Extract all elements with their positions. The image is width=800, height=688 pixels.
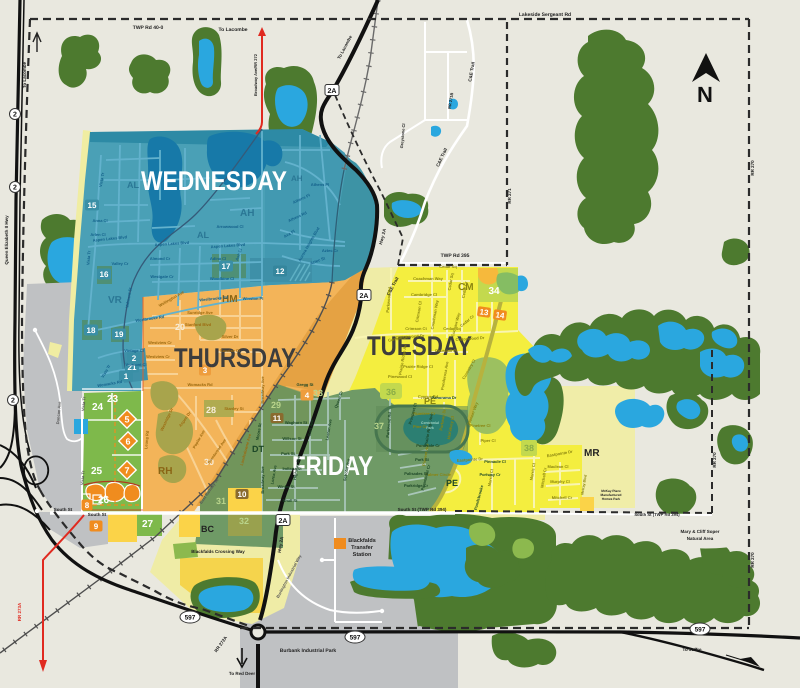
svg-text:Panorama Dr: Panorama Dr xyxy=(432,395,457,400)
svg-text:Almond Cr: Almond Cr xyxy=(150,256,171,261)
svg-text:19: 19 xyxy=(115,330,124,339)
svg-text:To Lacombe: To Lacombe xyxy=(218,27,247,33)
svg-text:6: 6 xyxy=(125,436,130,446)
svg-text:Athens Pl: Athens Pl xyxy=(311,182,329,187)
svg-text:Prairie Ridge Cl: Prairie Ridge Cl xyxy=(403,364,433,369)
svg-text:Valley Cr: Valley Cr xyxy=(112,261,129,266)
svg-text:Pinetree Cl: Pinetree Cl xyxy=(470,423,491,428)
svg-text:10: 10 xyxy=(238,490,247,499)
svg-text:Adina Cl: Adina Cl xyxy=(210,256,226,261)
svg-text:2: 2 xyxy=(13,185,17,192)
svg-text:South St (TWP Rd 394): South St (TWP Rd 394) xyxy=(634,512,680,517)
svg-text:Stanford Blvd: Stanford Blvd xyxy=(185,322,212,327)
svg-text:South St: South St xyxy=(54,507,73,512)
svg-text:Park: Park xyxy=(426,426,434,430)
svg-text:RH: RH xyxy=(158,466,172,477)
svg-text:AH: AH xyxy=(240,208,254,219)
svg-text:Park St: Park St xyxy=(415,457,429,462)
svg-text:BC: BC xyxy=(201,524,214,534)
svg-text:Stanley St: Stanley St xyxy=(224,406,244,411)
svg-text:Indiana St: Indiana St xyxy=(282,466,302,471)
svg-text:Burbank Industrial Park: Burbank Industrial Park xyxy=(280,648,337,654)
svg-text:23: 23 xyxy=(107,394,119,405)
svg-text:Broadway Ave: Broadway Ave xyxy=(260,376,265,404)
svg-text:2A: 2A xyxy=(279,518,288,525)
svg-text:TWP Rd 40-0: TWP Rd 40-0 xyxy=(133,25,164,31)
svg-text:33: 33 xyxy=(313,388,323,398)
svg-text:Cedar Sq: Cedar Sq xyxy=(439,264,457,269)
svg-text:Willson St: Willson St xyxy=(282,436,302,441)
svg-text:Coachman Way: Coachman Way xyxy=(413,276,443,281)
svg-text:16: 16 xyxy=(100,270,109,279)
svg-text:Crimson Ct: Crimson Ct xyxy=(405,326,427,331)
svg-text:DT: DT xyxy=(252,444,264,454)
svg-text:Shull St: Shull St xyxy=(283,498,299,503)
svg-text:RR 270: RR 270 xyxy=(750,160,755,176)
svg-text:RR 271: RR 271 xyxy=(507,188,512,204)
svg-text:Westview Cr: Westview Cr xyxy=(148,340,172,345)
svg-text:Centennial: Centennial xyxy=(421,421,439,425)
svg-text:25: 25 xyxy=(91,466,103,477)
svg-text:Pinnacle Cl: Pinnacle Cl xyxy=(484,459,506,464)
svg-text:12: 12 xyxy=(276,267,285,276)
svg-text:Park St: Park St xyxy=(281,451,295,456)
svg-text:Mitchell Cr: Mitchell Cr xyxy=(552,495,573,500)
svg-text:TWP Rd 395: TWP Rd 395 xyxy=(441,253,470,259)
svg-text:28: 28 xyxy=(206,405,216,415)
svg-text:RR 273A: RR 273A xyxy=(17,602,22,621)
svg-text:Waghorn St: Waghorn St xyxy=(285,420,308,425)
svg-text:Winko St: Winko St xyxy=(277,484,295,489)
svg-text:9: 9 xyxy=(94,522,99,531)
svg-text:597: 597 xyxy=(695,627,706,634)
svg-text:MR: MR xyxy=(584,448,600,459)
svg-text:FRIDAY: FRIDAY xyxy=(292,451,373,481)
svg-text:17: 17 xyxy=(222,262,231,271)
svg-text:Queen Elizabeth II Hwy: Queen Elizabeth II Hwy xyxy=(4,215,9,265)
svg-text:Winston Pl: Winston Pl xyxy=(243,296,264,301)
svg-text:Station: Station xyxy=(353,552,372,558)
svg-text:Sunridge Ave: Sunridge Ave xyxy=(187,310,213,315)
svg-text:Portway Cr: Portway Cr xyxy=(479,472,501,477)
svg-text:Natural Area: Natural Area xyxy=(687,536,714,541)
svg-text:Homes Park: Homes Park xyxy=(602,497,621,501)
svg-text:Aztec Cr: Aztec Cr xyxy=(322,248,339,253)
svg-text:Murphy Cl: Murphy Cl xyxy=(550,479,570,484)
svg-text:29: 29 xyxy=(271,400,281,410)
svg-text:To Joffre: To Joffre xyxy=(683,647,702,652)
svg-text:Arlen Cl: Arlen Cl xyxy=(90,232,105,237)
svg-text:Womacks Rd: Womacks Rd xyxy=(187,382,213,387)
svg-text:Piper Cl: Piper Cl xyxy=(480,438,495,443)
svg-text:597: 597 xyxy=(350,635,361,642)
svg-text:Silver Dr: Silver Dr xyxy=(222,334,239,339)
svg-text:Blackfalds: Blackfalds xyxy=(348,538,376,544)
svg-text:37: 37 xyxy=(374,421,384,431)
svg-text:Arrowwood Cl: Arrowwood Cl xyxy=(216,224,243,229)
svg-text:Transfer: Transfer xyxy=(351,545,374,551)
svg-text:South St (TWP Rd 394): South St (TWP Rd 394) xyxy=(398,507,447,512)
svg-text:Churchill Pl: Churchill Pl xyxy=(435,348,457,353)
svg-text:Vintage Cl: Vintage Cl xyxy=(124,348,144,353)
svg-text:26: 26 xyxy=(98,495,110,506)
svg-text:14: 14 xyxy=(495,310,506,320)
svg-text:4: 4 xyxy=(305,391,310,400)
svg-text:2: 2 xyxy=(11,398,15,405)
svg-text:Mary & Cliff Soper: Mary & Cliff Soper xyxy=(680,529,719,534)
svg-text:2: 2 xyxy=(13,112,17,119)
svg-text:24: 24 xyxy=(92,402,104,413)
svg-text:1: 1 xyxy=(124,372,129,381)
svg-text:South St: South St xyxy=(88,512,107,517)
svg-text:RR 270: RR 270 xyxy=(750,552,755,568)
svg-text:WEDNESDAY: WEDNESDAY xyxy=(141,166,287,196)
svg-text:PE: PE xyxy=(446,478,458,488)
svg-text:Broadway Ave/RR 272: Broadway Ave/RR 272 xyxy=(253,53,258,96)
svg-text:Anna Cl: Anna Cl xyxy=(92,218,107,223)
svg-text:8: 8 xyxy=(85,501,90,510)
svg-text:2A: 2A xyxy=(328,88,337,95)
svg-text:VR: VR xyxy=(108,295,123,306)
svg-text:20: 20 xyxy=(175,322,185,332)
svg-text:Vermont Cl: Vermont Cl xyxy=(125,362,146,367)
svg-text:AL: AL xyxy=(197,230,209,240)
svg-text:Westgate Cr: Westgate Cr xyxy=(150,274,174,279)
svg-text:34: 34 xyxy=(488,286,500,297)
svg-text:Woodbine Cl: Woodbine Cl xyxy=(210,276,234,281)
svg-text:36: 36 xyxy=(386,387,396,397)
svg-text:Sunrise Cl: Sunrise Cl xyxy=(220,348,240,353)
svg-text:7: 7 xyxy=(124,465,129,475)
svg-text:2A: 2A xyxy=(360,293,369,300)
svg-text:Cambridge Cl: Cambridge Cl xyxy=(411,292,437,297)
svg-text:18: 18 xyxy=(87,326,96,335)
svg-text:N: N xyxy=(697,82,713,107)
svg-text:15: 15 xyxy=(88,201,97,210)
svg-text:Westview Cr: Westview Cr xyxy=(146,354,170,359)
svg-text:AL: AL xyxy=(127,180,139,190)
svg-text:32: 32 xyxy=(239,516,249,526)
svg-text:Gregg St: Gregg St xyxy=(297,382,315,387)
svg-text:To Lacombe: To Lacombe xyxy=(22,61,27,88)
svg-text:597: 597 xyxy=(185,615,196,622)
svg-text:31: 31 xyxy=(216,496,226,506)
svg-text:AH: AH xyxy=(291,174,303,183)
svg-text:To Red Deer: To Red Deer xyxy=(229,671,255,676)
svg-text:13: 13 xyxy=(479,307,490,317)
svg-text:38: 38 xyxy=(524,443,534,453)
svg-text:RR 270: RR 270 xyxy=(712,452,717,468)
svg-text:Lakeside Sergeant Rd: Lakeside Sergeant Rd xyxy=(519,12,571,18)
svg-text:Pinewood Cl: Pinewood Cl xyxy=(388,374,412,379)
svg-text:Maclean Cl: Maclean Cl xyxy=(548,464,569,469)
svg-text:27: 27 xyxy=(142,519,154,530)
svg-text:11: 11 xyxy=(273,414,282,423)
svg-text:5: 5 xyxy=(124,414,129,424)
svg-text:Blackfalds Crossing Way: Blackfalds Crossing Way xyxy=(191,549,245,554)
svg-text:Broadway Ave: Broadway Ave xyxy=(260,466,265,494)
